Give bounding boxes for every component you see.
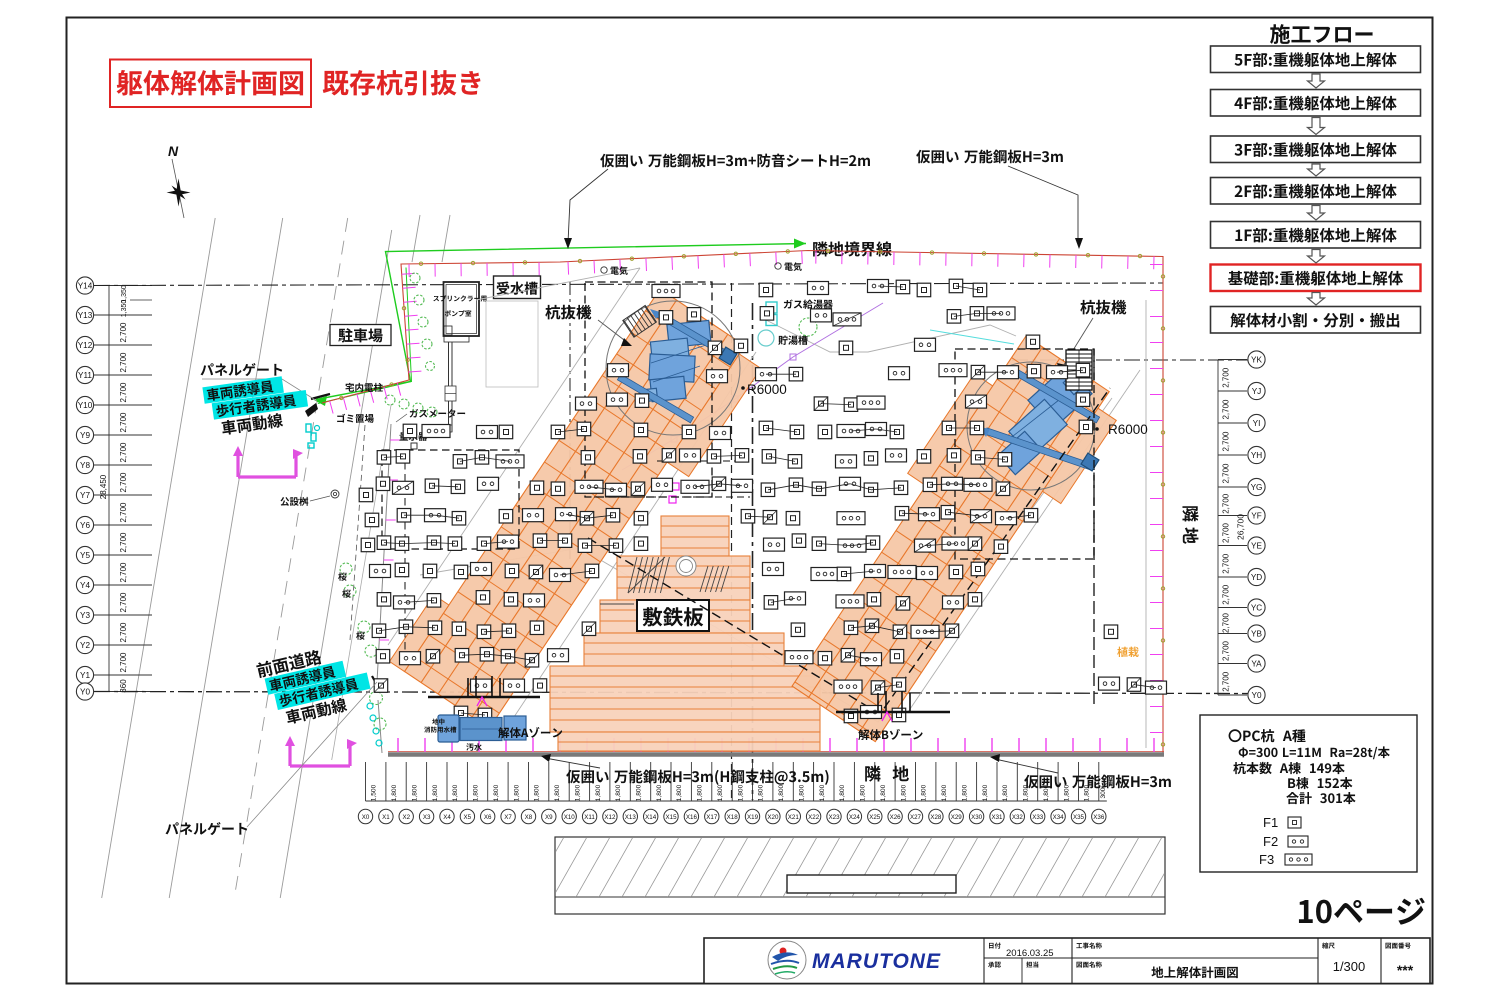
svg-text:YD: YD [1251, 573, 1262, 582]
svg-text:1,800: 1,800 [941, 784, 948, 801]
svg-text:1,800: 1,800 [1063, 784, 1070, 801]
svg-text:X25: X25 [869, 814, 881, 821]
svg-text:1,800: 1,800 [1084, 784, 1091, 801]
svg-text:Y0: Y0 [1251, 691, 1261, 700]
svg-text:1,800: 1,800 [860, 784, 867, 801]
svg-text:X0: X0 [362, 814, 370, 821]
svg-text:X4: X4 [443, 814, 451, 821]
svg-text:2,700: 2,700 [1222, 553, 1231, 574]
svg-text:X6: X6 [484, 814, 492, 821]
svg-text:1,800: 1,800 [391, 784, 398, 801]
svg-text:X26: X26 [890, 814, 902, 821]
svg-text:X8: X8 [525, 814, 533, 821]
svg-text:R6000: R6000 [1108, 422, 1148, 437]
svg-text:1,800: 1,800 [921, 784, 928, 801]
svg-text:YF: YF [1251, 512, 1261, 521]
svg-text:2,700: 2,700 [1222, 612, 1231, 633]
svg-text:2,700: 2,700 [1222, 584, 1231, 605]
svg-text:2,700: 2,700 [119, 622, 128, 643]
svg-text:2,700: 2,700 [1222, 671, 1231, 692]
svg-text:Y6: Y6 [80, 521, 90, 530]
svg-text:X24: X24 [849, 814, 861, 821]
svg-text:Y13: Y13 [78, 311, 93, 320]
svg-text:YG: YG [1251, 483, 1263, 492]
svg-text:X36: X36 [1093, 814, 1105, 821]
svg-text:Y11: Y11 [78, 371, 92, 380]
svg-text:X1: X1 [382, 814, 390, 821]
svg-text:1,800: 1,800 [982, 784, 989, 801]
svg-text:F2: F2 [1263, 834, 1278, 849]
svg-text:YE: YE [1251, 542, 1262, 551]
svg-text:X27: X27 [910, 814, 922, 821]
svg-text:300: 300 [1100, 787, 1107, 798]
svg-text:YB: YB [1251, 630, 1262, 639]
svg-text:Y5: Y5 [80, 551, 90, 560]
svg-text:X15: X15 [666, 814, 678, 821]
svg-text:1,800: 1,800 [961, 784, 968, 801]
svg-text:2,700: 2,700 [119, 352, 128, 373]
svg-text:1,800: 1,800 [534, 784, 541, 801]
svg-text:X30: X30 [971, 814, 983, 821]
svg-text:1,800: 1,800 [758, 784, 765, 801]
svg-text:1,800: 1,800 [839, 784, 846, 801]
svg-text:R6000: R6000 [747, 382, 787, 397]
svg-text:X9: X9 [545, 814, 553, 821]
svg-text:2,700: 2,700 [119, 592, 128, 613]
svg-text:1,800: 1,800 [595, 784, 602, 801]
svg-text:X23: X23 [829, 814, 841, 821]
svg-text:N: N [168, 143, 179, 159]
svg-text:Y9: Y9 [80, 431, 90, 440]
svg-text:2,700: 2,700 [119, 412, 128, 433]
svg-text:X32: X32 [1012, 814, 1024, 821]
svg-text:2,700: 2,700 [1222, 640, 1231, 661]
svg-text:Y8: Y8 [80, 461, 90, 470]
svg-text:X29: X29 [951, 814, 963, 821]
svg-text:Y2: Y2 [80, 641, 90, 650]
svg-text:2,700: 2,700 [1222, 493, 1231, 514]
svg-text:1,800: 1,800 [554, 784, 561, 801]
svg-text:2,700: 2,700 [119, 562, 128, 583]
svg-text:1,800: 1,800 [513, 784, 520, 801]
svg-text:X22: X22 [808, 814, 820, 821]
svg-text:2,700: 2,700 [119, 472, 128, 493]
svg-text:X14: X14 [645, 814, 657, 821]
svg-text:2,700: 2,700 [1222, 399, 1231, 420]
svg-text:2,700: 2,700 [1222, 463, 1231, 484]
svg-text:360: 360 [119, 679, 128, 693]
svg-text:1,800: 1,800 [411, 784, 418, 801]
svg-text:1,800: 1,800 [697, 784, 704, 801]
svg-text:MARUTONE: MARUTONE [812, 950, 941, 973]
svg-text:X35: X35 [1073, 814, 1085, 821]
svg-text:F1: F1 [1263, 815, 1278, 830]
svg-text:2,700: 2,700 [119, 322, 128, 343]
svg-text:X19: X19 [747, 814, 759, 821]
svg-text:X5: X5 [464, 814, 472, 821]
svg-text:YK: YK [1251, 356, 1262, 365]
svg-text:1,800: 1,800 [574, 784, 581, 801]
svg-text:YJ: YJ [1252, 387, 1262, 396]
svg-text:YC: YC [1251, 604, 1262, 613]
svg-text:X31: X31 [991, 814, 1003, 821]
svg-text:X33: X33 [1032, 814, 1044, 821]
svg-text:X12: X12 [604, 814, 616, 821]
svg-text:1,800: 1,800 [656, 784, 663, 801]
svg-text:YI: YI [1253, 419, 1261, 428]
svg-text:2,700: 2,700 [1222, 367, 1231, 388]
svg-text:X7: X7 [504, 814, 512, 821]
svg-text:1,800: 1,800 [635, 784, 642, 801]
svg-text:X3: X3 [423, 814, 431, 821]
svg-text:X17: X17 [706, 814, 718, 821]
svg-text:1,350: 1,350 [121, 300, 128, 318]
svg-text:Y10: Y10 [78, 401, 93, 410]
svg-text:1,800: 1,800 [819, 784, 826, 801]
svg-text:1,800: 1,800 [452, 784, 459, 801]
svg-text:2,700: 2,700 [1222, 522, 1231, 543]
svg-text:***: *** [1397, 962, 1414, 978]
svg-text:2,700: 2,700 [1222, 431, 1231, 452]
svg-text:1,800: 1,800 [900, 784, 907, 801]
svg-text:1,800: 1,800 [1002, 784, 1009, 801]
svg-text:1,800: 1,800 [880, 784, 887, 801]
svg-text:X28: X28 [930, 814, 942, 821]
svg-text:2016.03.25: 2016.03.25 [1006, 948, 1054, 959]
svg-text:2,700: 2,700 [119, 532, 128, 553]
svg-text:1,800: 1,800 [676, 784, 683, 801]
svg-text:X13: X13 [625, 814, 637, 821]
svg-text:X11: X11 [584, 814, 595, 821]
svg-text:Y1: Y1 [80, 671, 90, 680]
svg-text:1,800: 1,800 [493, 784, 500, 801]
svg-text:Y14: Y14 [78, 282, 93, 291]
svg-text:1,800: 1,800 [778, 784, 785, 801]
svg-text:X21: X21 [788, 814, 800, 821]
svg-text:26,700: 26,700 [1236, 514, 1246, 540]
svg-text:1/300: 1/300 [1333, 959, 1366, 974]
svg-text:28,450: 28,450 [99, 474, 108, 499]
svg-text:2,700: 2,700 [119, 442, 128, 463]
svg-text:X2: X2 [402, 814, 410, 821]
svg-text:YH: YH [1251, 451, 1262, 460]
svg-text:F3: F3 [1259, 852, 1274, 867]
svg-text:2,700: 2,700 [119, 382, 128, 403]
svg-text:1,800: 1,800 [717, 784, 724, 801]
svg-text:Y12: Y12 [78, 341, 93, 350]
svg-text:2,700: 2,700 [119, 652, 128, 673]
svg-text:X10: X10 [564, 814, 576, 821]
svg-text:Y3: Y3 [80, 611, 90, 620]
svg-text:X16: X16 [686, 814, 698, 821]
svg-text:Y0: Y0 [80, 688, 90, 697]
svg-text:Y7: Y7 [80, 491, 90, 500]
svg-text:Y4: Y4 [80, 581, 90, 590]
svg-text:X34: X34 [1053, 814, 1065, 821]
svg-text:1,800: 1,800 [737, 784, 744, 801]
svg-text:X20: X20 [767, 814, 779, 821]
svg-text:X18: X18 [727, 814, 739, 821]
svg-text:1,800: 1,800 [615, 784, 622, 801]
svg-text:1,500: 1,500 [371, 784, 378, 801]
svg-text:YA: YA [1251, 660, 1262, 669]
svg-text:1,800: 1,800 [798, 784, 805, 801]
svg-text:1,800: 1,800 [432, 784, 439, 801]
svg-text:1,800: 1,800 [473, 784, 480, 801]
svg-text:2,700: 2,700 [119, 502, 128, 523]
